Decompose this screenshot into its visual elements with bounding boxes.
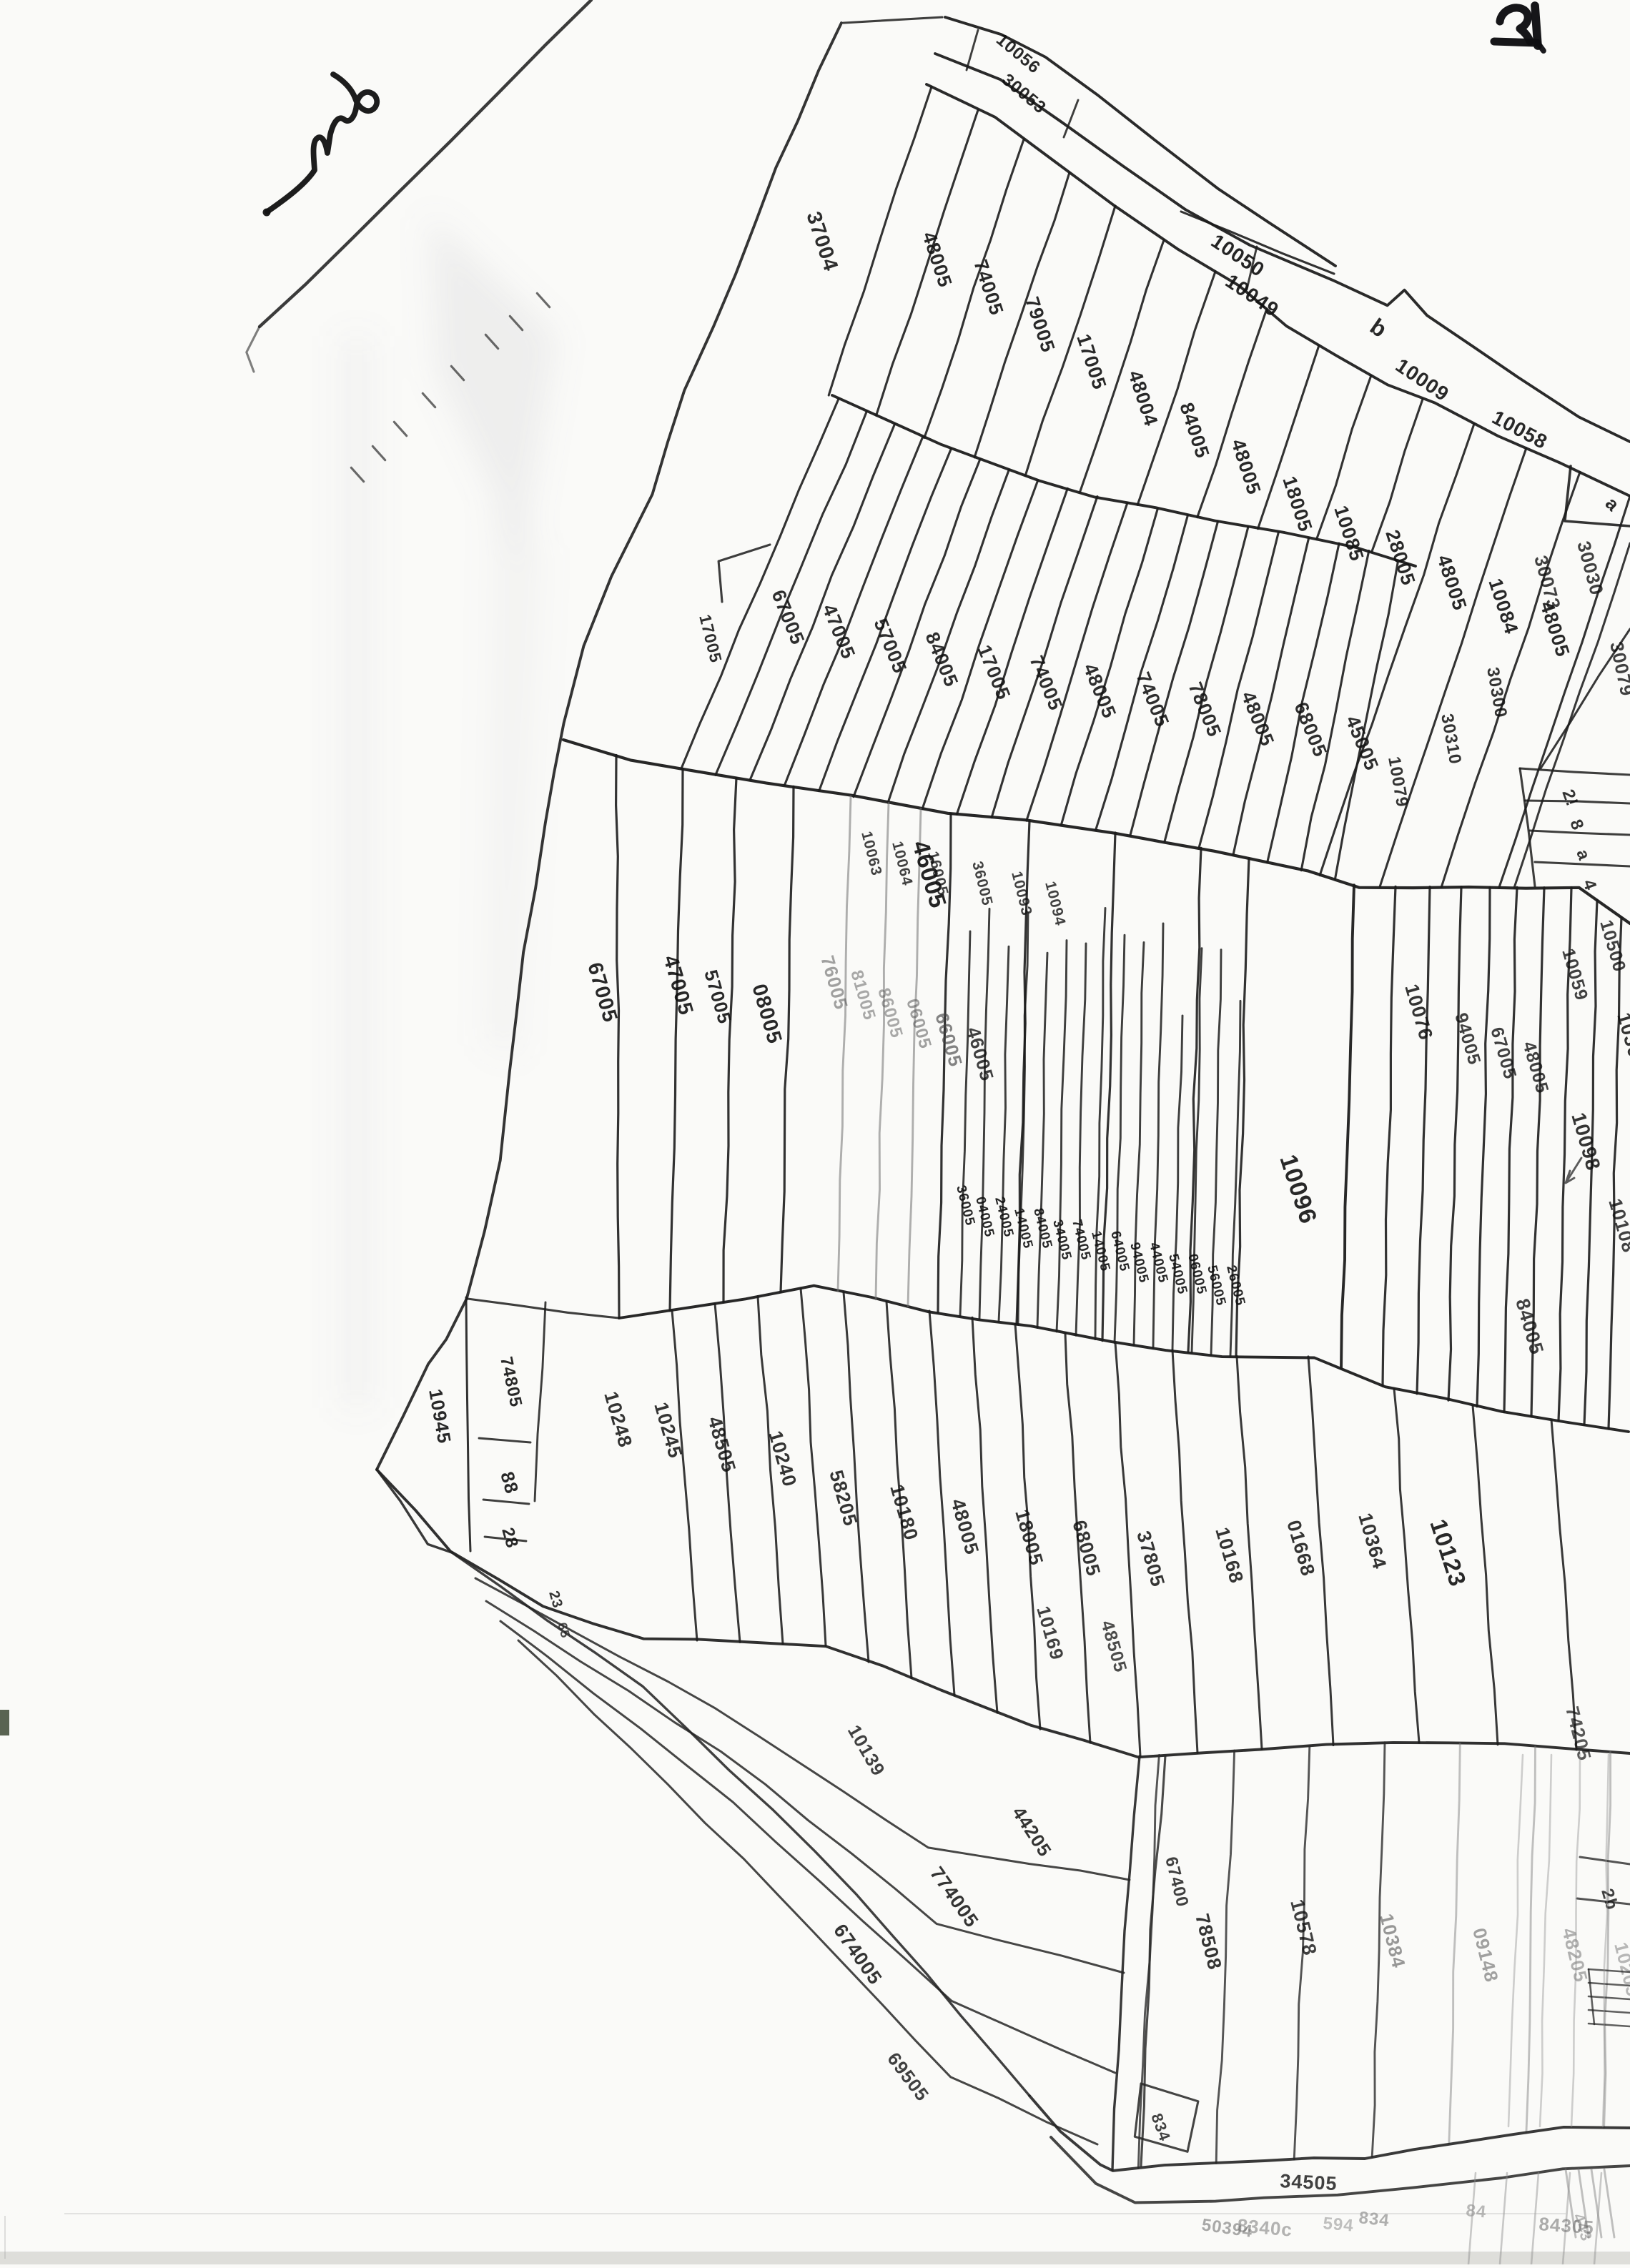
- svg-text:34505: 34505: [1280, 2170, 1338, 2194]
- svg-text:834: 834: [1358, 2208, 1391, 2230]
- svg-text:594: 594: [1322, 2214, 1354, 2236]
- svg-text:84305: 84305: [1538, 2213, 1595, 2238]
- svg-text:84: 84: [1465, 2201, 1487, 2222]
